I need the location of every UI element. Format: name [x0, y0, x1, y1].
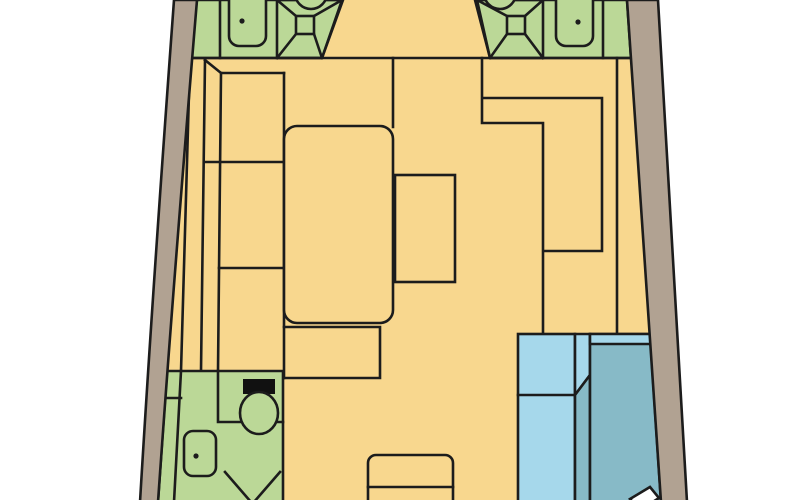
drain-dot — [193, 453, 198, 458]
saloon-table — [395, 175, 455, 282]
washbasin — [229, 0, 266, 46]
aft-berth-head-strip — [590, 334, 651, 344]
plan-root — [0, 0, 810, 500]
forward-head-starboard — [475, 0, 631, 58]
drain-dot — [239, 18, 244, 23]
berth-side-lower — [575, 375, 590, 500]
aft-cabin-seat — [518, 334, 575, 500]
toilet-bowl — [240, 392, 278, 434]
aft-head — [158, 371, 283, 500]
aft-cabin — [518, 334, 661, 500]
boat-floor-plan — [0, 0, 810, 500]
companionway-steps — [368, 455, 453, 500]
washbasin — [184, 431, 216, 476]
drain-dot — [575, 19, 580, 24]
saloon-berth — [284, 126, 393, 323]
washbasin — [556, 0, 593, 46]
forward-head-port — [189, 0, 343, 58]
companionway — [368, 455, 453, 500]
